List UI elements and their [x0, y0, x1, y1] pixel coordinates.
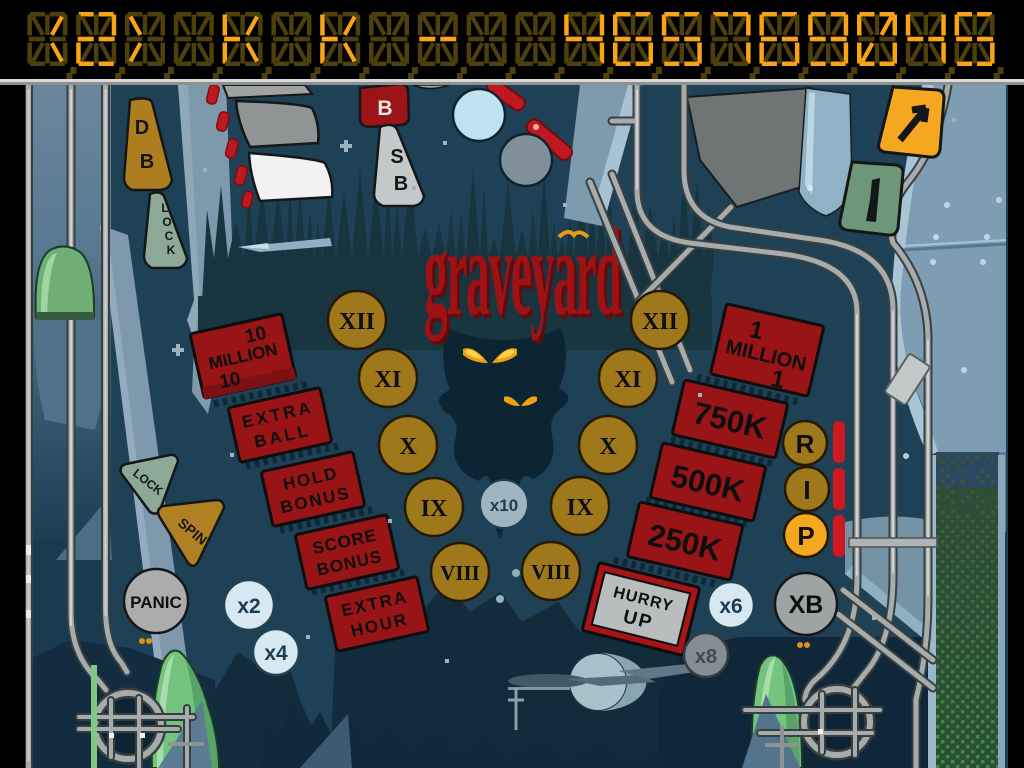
svg-text:XI: XI — [375, 367, 402, 393]
svg-text:XII: XII — [642, 309, 678, 335]
svg-text:x4: x4 — [264, 642, 288, 665]
svg-text:S: S — [390, 146, 403, 168]
svg-text:D: D — [135, 117, 149, 139]
svg-text:VIII: VIII — [531, 560, 571, 584]
svg-text:B: B — [140, 151, 154, 173]
svg-text:B: B — [377, 97, 392, 120]
svg-text:XI: XI — [615, 367, 642, 393]
svg-text:IX: IX — [421, 496, 448, 522]
svg-text:X: X — [599, 434, 617, 460]
svg-text:B: B — [394, 173, 408, 195]
svg-text:x8: x8 — [695, 646, 717, 668]
svg-text:x10: x10 — [490, 496, 518, 515]
svg-text:IX: IX — [567, 495, 594, 521]
svg-text:X: X — [399, 434, 417, 460]
svg-text:PANIC: PANIC — [130, 593, 182, 612]
svg-text:XB: XB — [789, 591, 824, 619]
svg-text:L: L — [161, 201, 168, 215]
svg-text:graveyard: graveyard — [424, 204, 622, 341]
svg-text:XII: XII — [339, 309, 375, 335]
svg-text:10: 10 — [217, 368, 242, 393]
svg-text:I: I — [803, 475, 810, 505]
svg-text:O: O — [162, 215, 171, 229]
svg-text:x2: x2 — [237, 595, 260, 618]
svg-text:P: P — [797, 521, 814, 551]
svg-text:R: R — [796, 429, 815, 459]
svg-text:C: C — [165, 229, 174, 243]
svg-text:x6: x6 — [719, 595, 742, 618]
svg-text:VIII: VIII — [440, 561, 480, 585]
svg-text:K: K — [167, 243, 176, 257]
